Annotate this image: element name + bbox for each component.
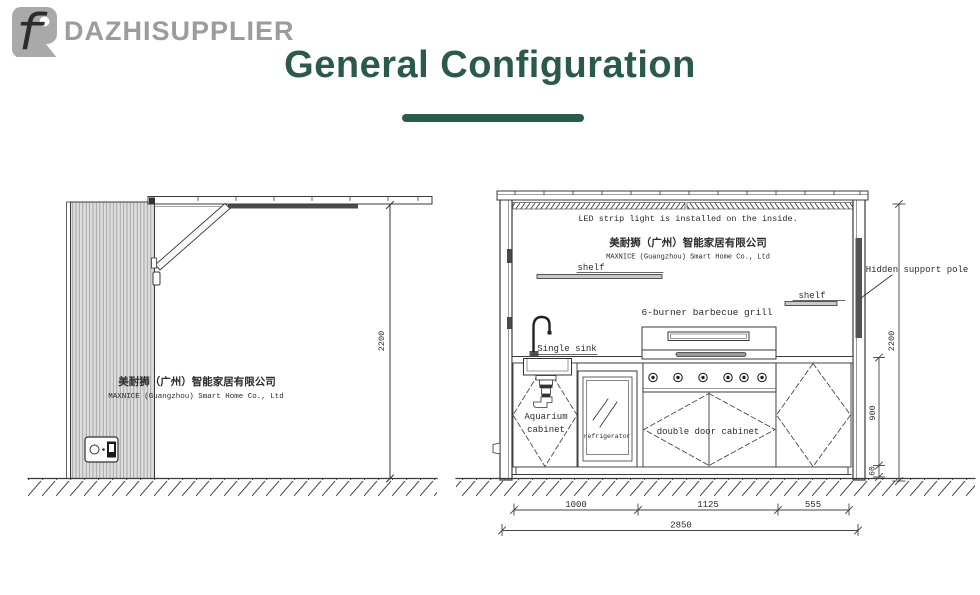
led-strip-right — [687, 203, 853, 210]
ground-hatch-right — [456, 479, 975, 496]
wall-edge-strip — [67, 202, 71, 479]
fridge-label: refrigerator — [584, 433, 631, 440]
page-title: General Configuration — [0, 44, 980, 87]
technical-drawing: 美耐狮（广州）智能家居有限公司 MAXNICE (Guangzhou) Smar… — [0, 140, 980, 595]
shelf-left-bar — [537, 275, 662, 279]
front-company-en: MAXNICE (Guangzhou) Smart Home Co., Ltd — [606, 254, 770, 262]
support-strut — [155, 204, 230, 271]
door-handle — [153, 272, 160, 285]
grill-handle — [676, 353, 746, 357]
ground-hatch-left — [28, 479, 437, 496]
plinth — [516, 467, 848, 475]
dim-cabinet-height: 900 — [868, 405, 878, 420]
shelf-right-label: shelf — [798, 291, 825, 301]
side-height-dim: 2200 — [377, 331, 387, 351]
led-strip-left — [513, 203, 685, 210]
faucet-spout — [548, 331, 552, 335]
double-cabinet-label: double door cabinet — [657, 427, 760, 437]
indicator-dot-icon — [102, 448, 105, 451]
side-watermark-en: MAXNICE (Guangzhou) Smart Home Co., Ltd — [108, 393, 284, 401]
grill-window — [668, 332, 749, 341]
trap-band — [542, 394, 551, 397]
control-panel — [85, 437, 118, 462]
pole-leader — [861, 275, 892, 298]
trap-fitting — [542, 388, 551, 394]
hinge-mark — [507, 249, 512, 263]
front-view-drawing: LED strip light is installed on the insi… — [456, 191, 975, 536]
dim-w1: 1000 — [565, 500, 587, 510]
hidden-support-pole — [856, 238, 863, 338]
shelf-left-label: shelf — [577, 263, 604, 273]
brand-name: DAZHISUPPLIER — [64, 16, 295, 47]
shelf-right-bar — [785, 302, 837, 306]
strut-bracket — [152, 258, 157, 268]
page: f DAZHISUPPLIER General Configuration — [0, 0, 980, 595]
socket-icon — [90, 445, 99, 454]
led-housing-side — [228, 205, 358, 209]
switch-inner — [109, 444, 114, 452]
roof-joint — [149, 198, 155, 204]
refrigerator-unit — [578, 371, 637, 467]
front-company-zh: 美耐狮（广州）智能家居有限公司 — [609, 236, 767, 250]
side-roof-beam — [148, 197, 432, 205]
hinge-mark — [507, 317, 512, 329]
drain-bracket — [493, 443, 500, 454]
dim-height: 2200 — [887, 331, 897, 351]
front-roof — [497, 191, 868, 200]
grill-control-panel — [643, 363, 776, 392]
dim-total-width: 2850 — [670, 521, 692, 531]
right-cabinet — [776, 363, 851, 467]
trap-flange — [536, 376, 556, 381]
dim-w3: 555 — [805, 500, 821, 510]
fridge-glass — [587, 381, 629, 455]
grill-label: 6-burner barbecue grill — [641, 307, 772, 318]
sink-label: Single sink — [537, 344, 596, 354]
side-watermark-zh: 美耐狮（广州）智能家居有限公司 — [118, 375, 276, 389]
grill-unit — [642, 327, 776, 392]
side-view-drawing: 美耐狮（广州）智能家居有限公司 MAXNICE (Guangzhou) Smar… — [28, 197, 437, 497]
title-underline — [402, 114, 584, 122]
left-post — [500, 196, 512, 480]
sink-basin — [524, 359, 572, 376]
trap-band — [540, 385, 553, 388]
trap-fitting — [540, 380, 553, 385]
aquarium-label-1: Aquarium — [524, 412, 567, 422]
pole-label: Hidden support pole — [866, 265, 969, 275]
dim-w2: 1125 — [697, 500, 719, 510]
aquarium-label-2: cabinet — [527, 425, 565, 435]
dim-plinth: 60 — [869, 466, 878, 476]
led-note: LED strip light is installed on the insi… — [578, 214, 797, 224]
